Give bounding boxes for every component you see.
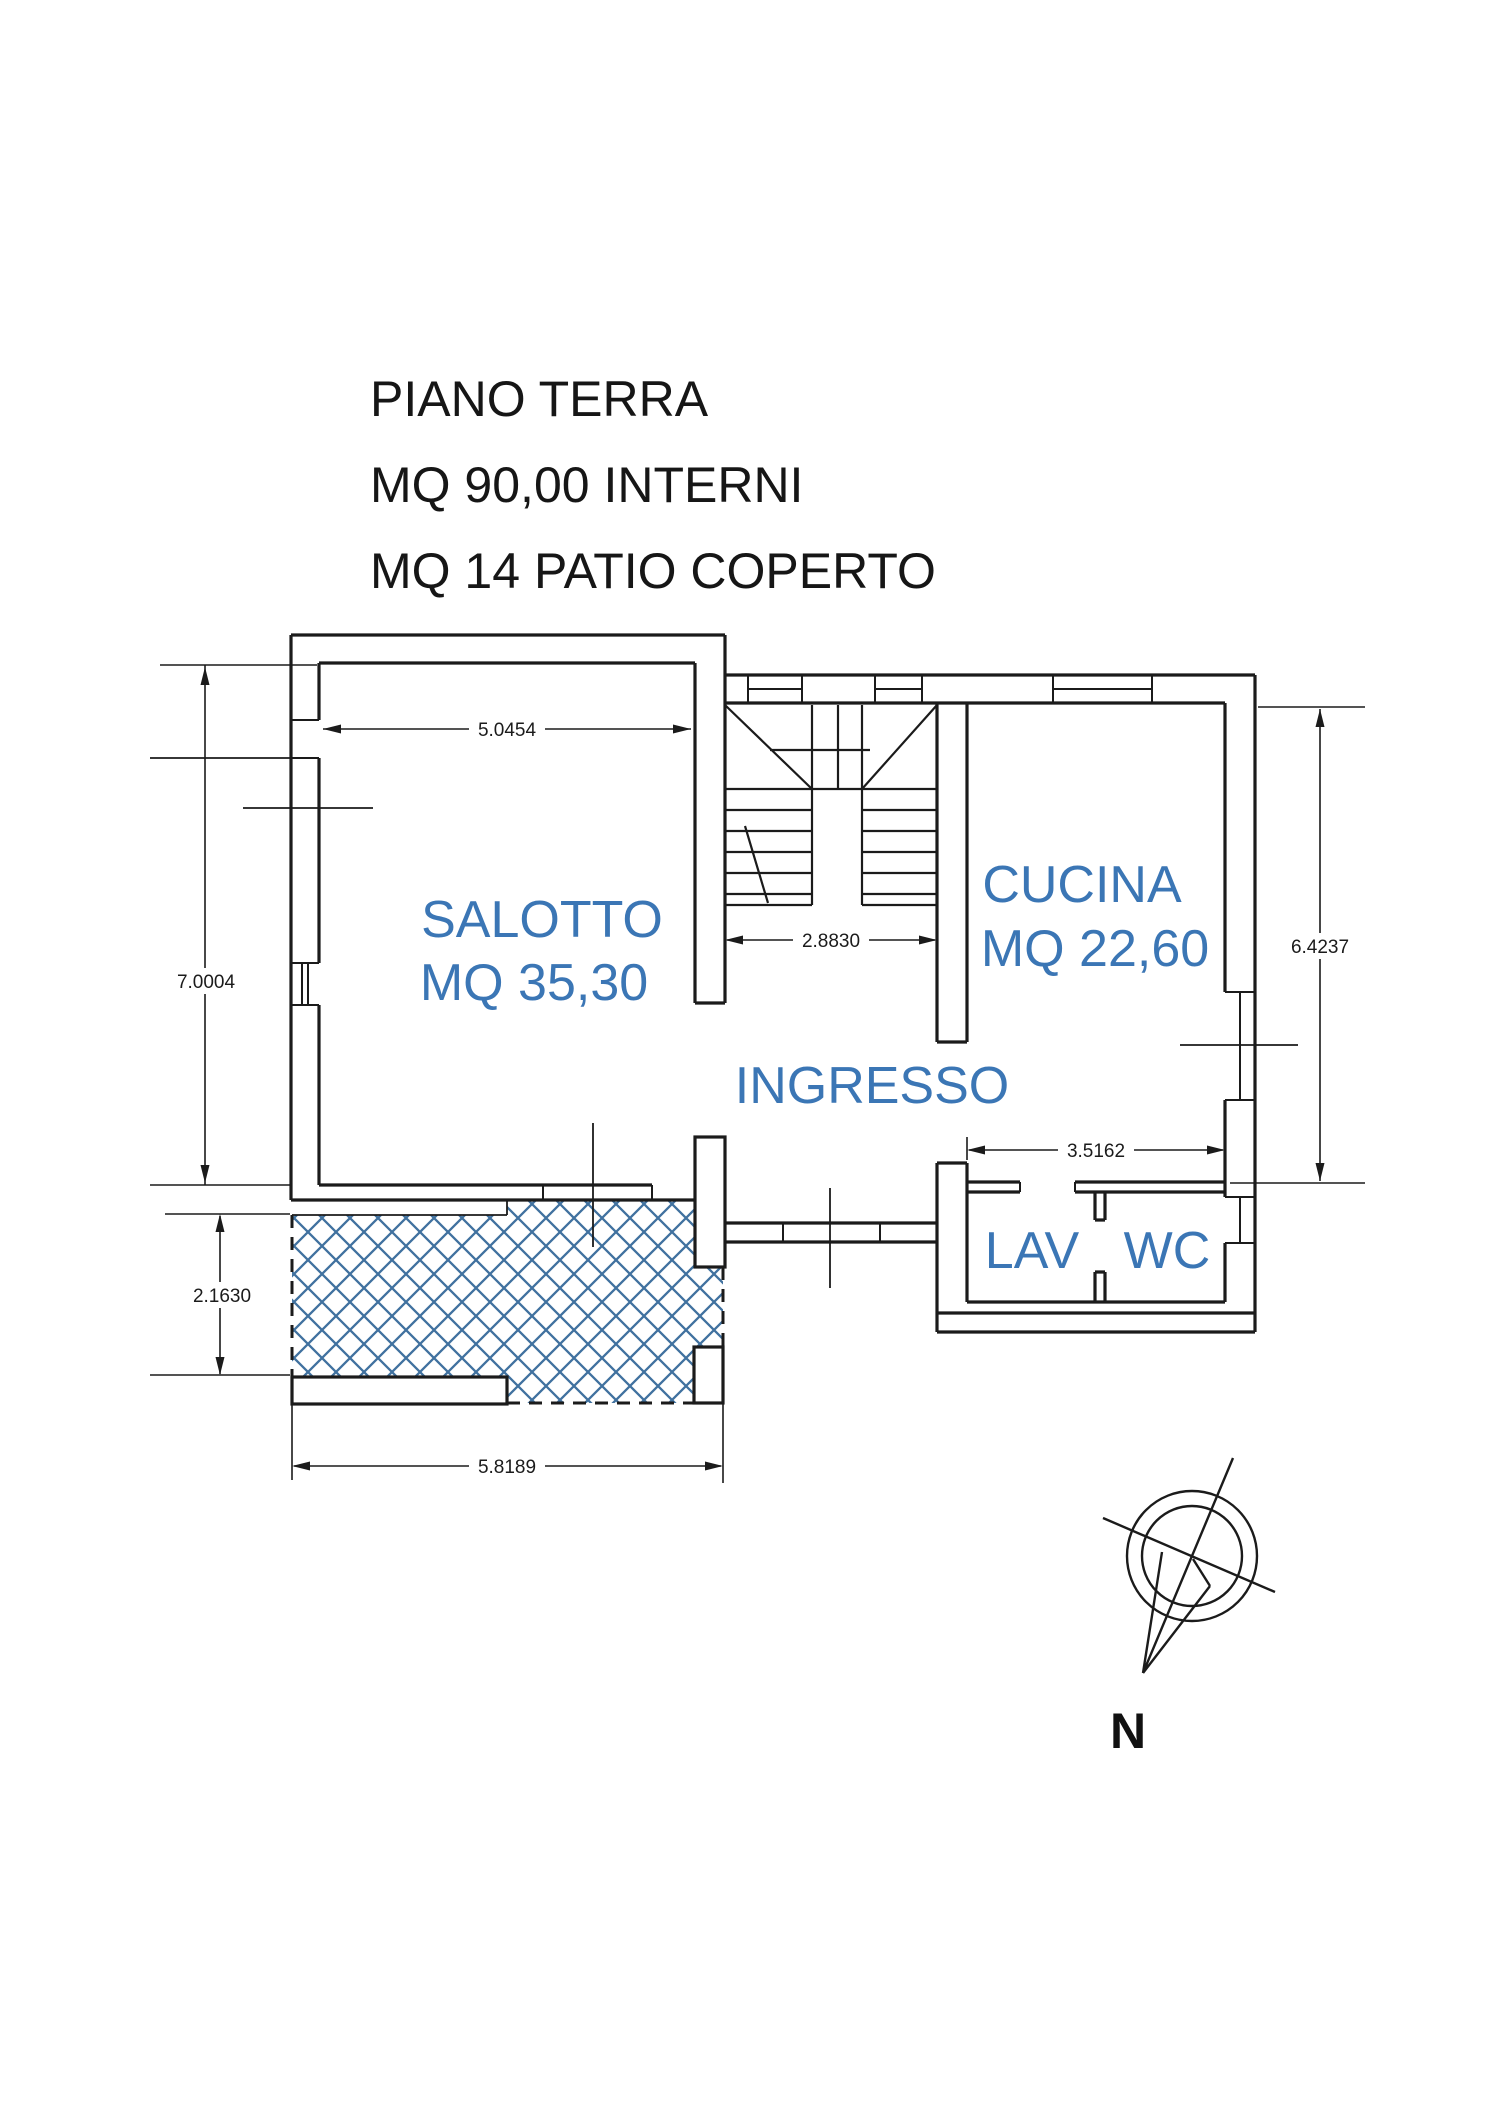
compass-north-label: N xyxy=(1110,1703,1146,1759)
dim-patio-width: 5.8189 xyxy=(478,1457,536,1478)
room-area-cucina: MQ 22,60 xyxy=(981,920,1209,978)
patio-top-edge xyxy=(292,1200,507,1215)
title-line-1: PIANO TERRA xyxy=(370,371,709,427)
room-label-cucina: CUCINA xyxy=(982,856,1182,914)
north-compass: N xyxy=(1103,1458,1275,1759)
dim-salotto-width: 5.0454 xyxy=(478,720,537,741)
patio-pillar xyxy=(694,1347,723,1403)
dim-stair-width: 2.8830 xyxy=(802,931,860,952)
room-label-ingresso: INGRESSO xyxy=(735,1057,1010,1115)
wall-pier xyxy=(695,1137,725,1267)
patio-hatch-area xyxy=(292,1200,723,1403)
room-label-lav: LAV xyxy=(985,1222,1080,1280)
floor-plan-page: PIANO TERRA MQ 90,00 INTERNI MQ 14 PATIO… xyxy=(0,0,1500,2123)
staircase xyxy=(725,705,937,905)
patio-hatch xyxy=(292,1200,723,1403)
floor-plan-drawing: PIANO TERRA MQ 90,00 INTERNI MQ 14 PATIO… xyxy=(0,0,1500,2123)
title-line-3: MQ 14 PATIO COPERTO xyxy=(370,543,936,599)
room-label-wc: WC xyxy=(1124,1222,1211,1280)
dim-right-height: 6.4237 xyxy=(1291,937,1349,958)
title-block: PIANO TERRA MQ 90,00 INTERNI MQ 14 PATIO… xyxy=(370,371,936,599)
stair-treads xyxy=(725,705,937,905)
room-label-salotto: SALOTTO xyxy=(421,891,663,949)
patio-south-wall xyxy=(292,1377,507,1404)
dim-patio-height: 2.1630 xyxy=(193,1286,251,1307)
dim-left-height: 7.0004 xyxy=(177,972,236,993)
title-line-2: MQ 90,00 INTERNI xyxy=(370,457,803,513)
dim-lav-wc-width: 3.5162 xyxy=(1067,1141,1125,1162)
room-area-salotto: MQ 35,30 xyxy=(420,954,648,1012)
